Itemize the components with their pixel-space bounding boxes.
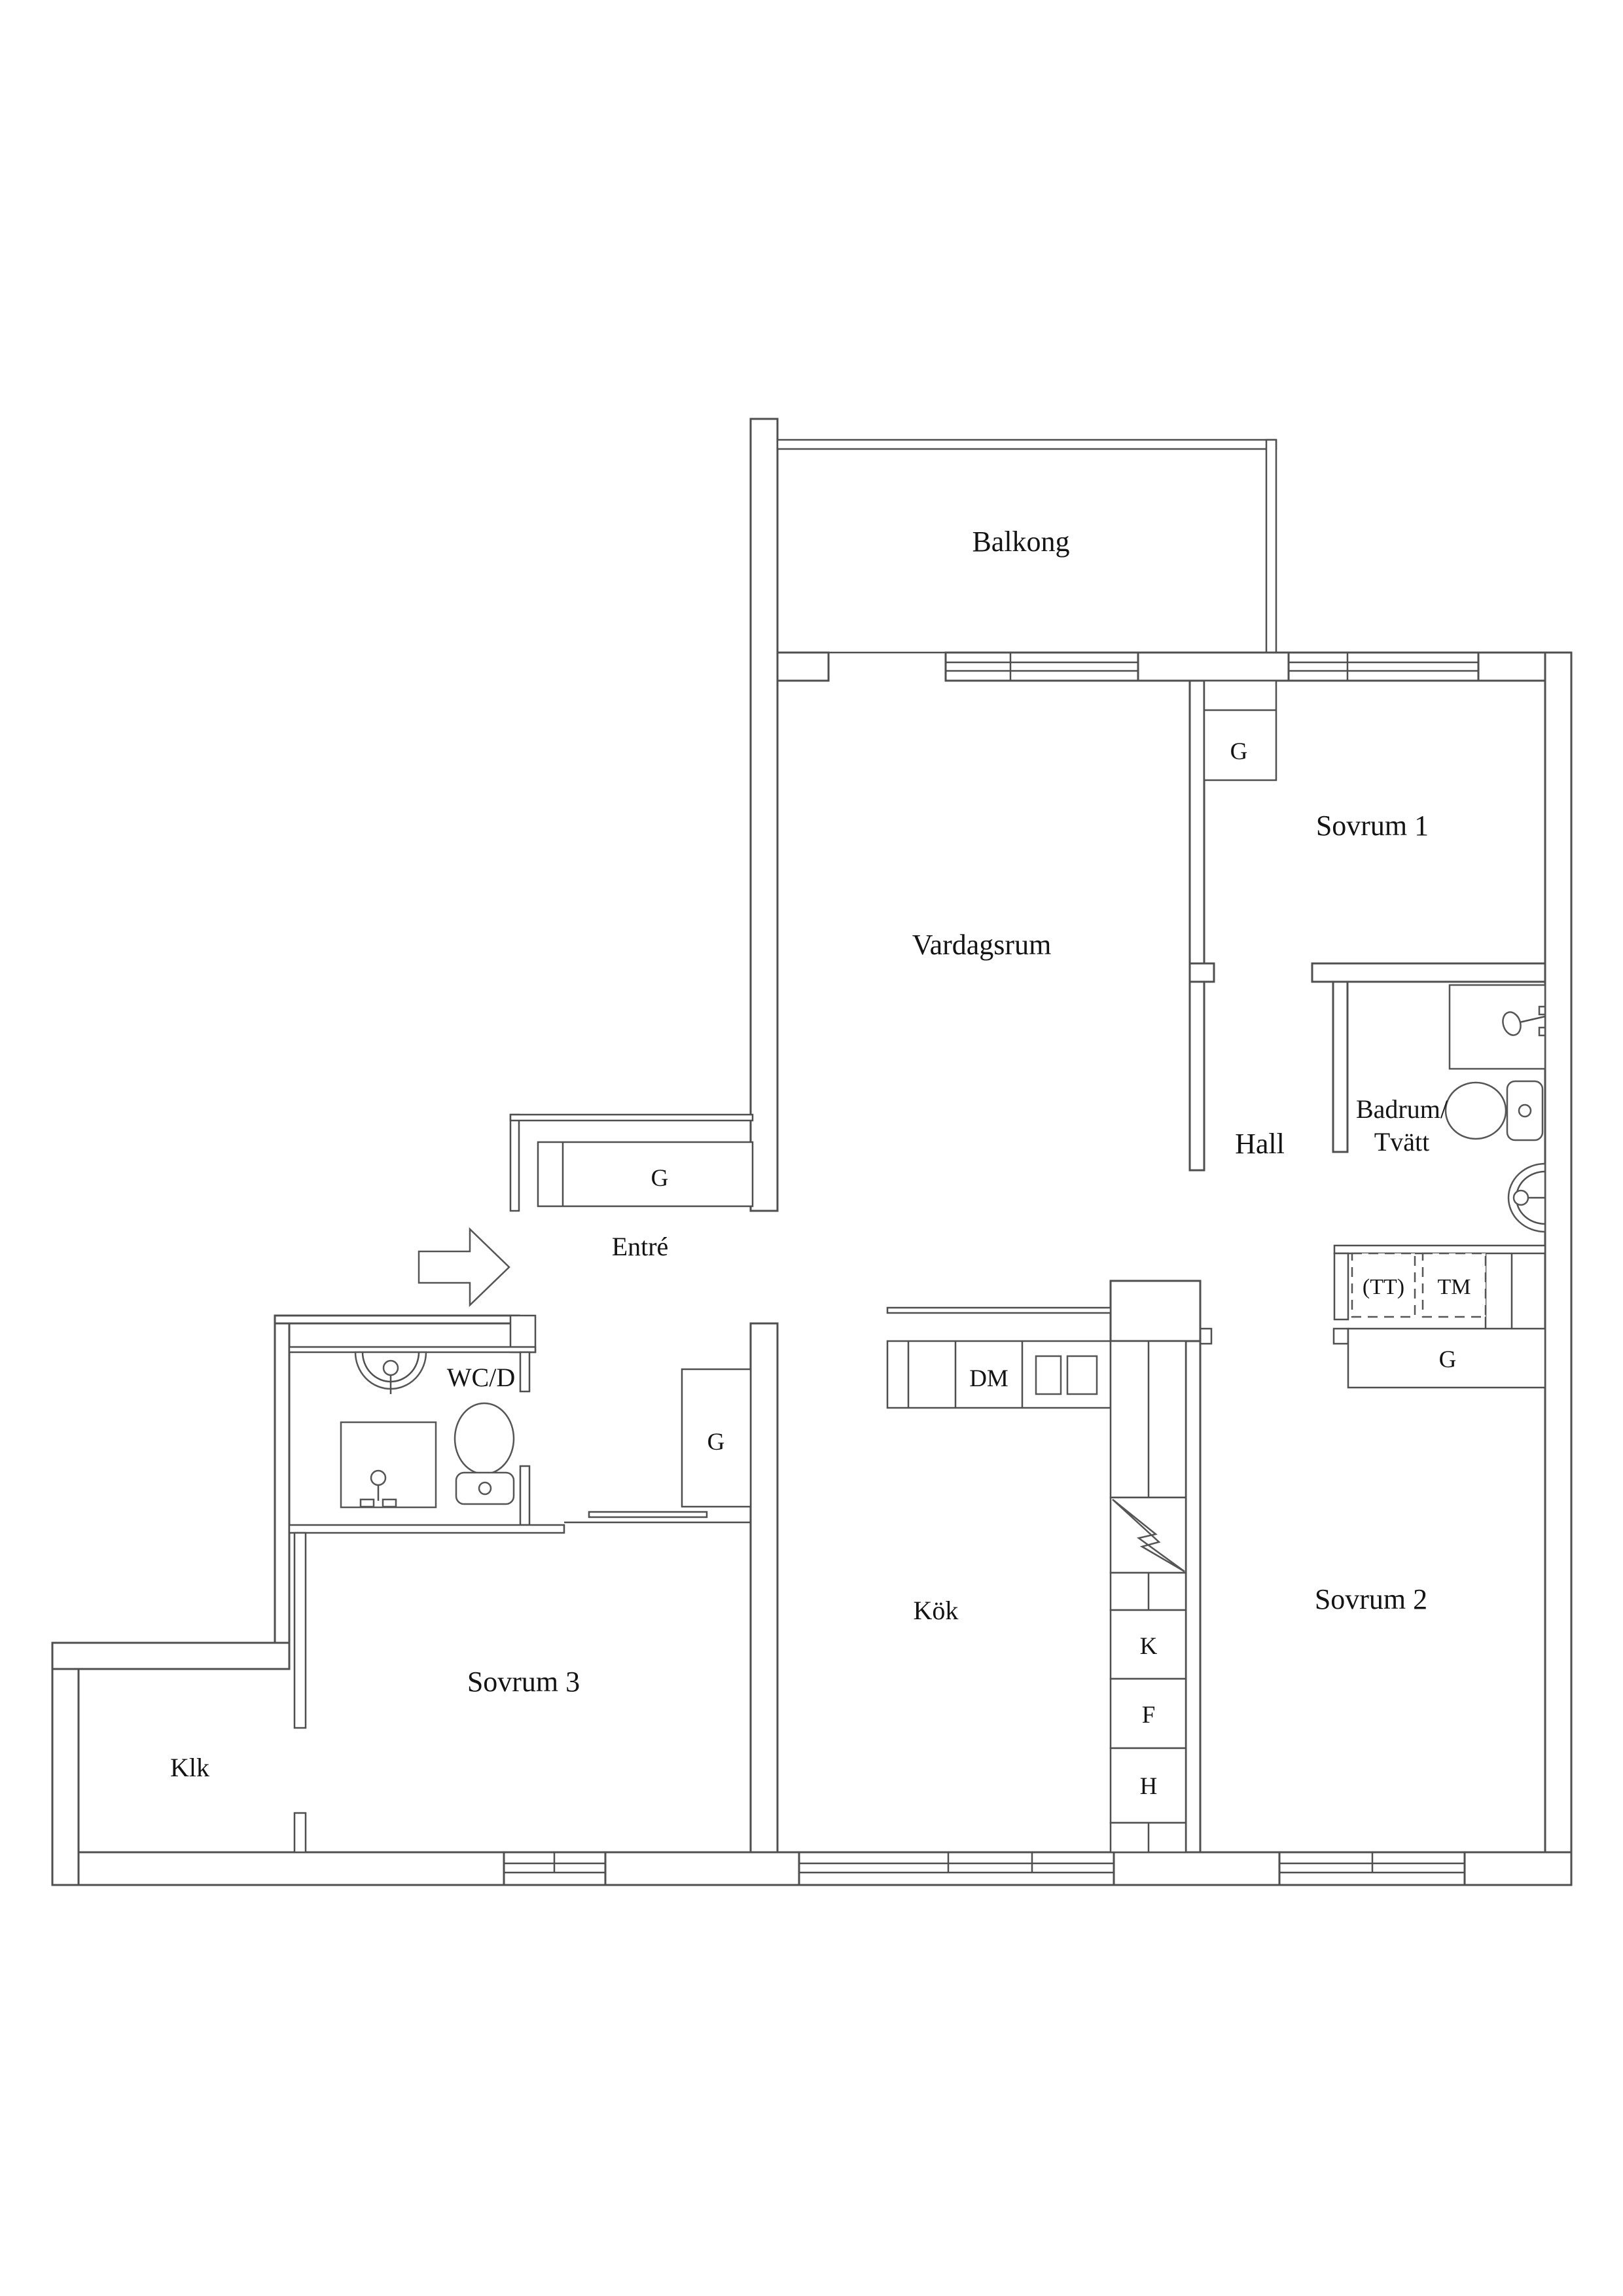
entry-south-wall	[275, 1316, 519, 1323]
bathroom-south-wall	[1334, 1246, 1545, 1253]
bathroom-label-line2: Tvätt	[1374, 1127, 1429, 1157]
freezer-label: F	[1142, 1702, 1156, 1729]
entrance-arrow-icon	[419, 1229, 509, 1305]
north-wall	[777, 653, 1545, 681]
bedroom3-wardrobe: G	[682, 1369, 751, 1507]
kitchen-west-wall	[751, 1323, 777, 1852]
bathroom-fixtures	[1446, 985, 1545, 1232]
entry-label: Entré	[612, 1232, 669, 1261]
bedroom1-south-wall	[1312, 963, 1545, 982]
wardrobe-label: G	[651, 1165, 669, 1192]
closet-north-outer-wall	[52, 1643, 289, 1669]
bedroom2-window	[1279, 1852, 1465, 1885]
closet-west-wall	[52, 1643, 79, 1885]
wc-shower	[341, 1422, 436, 1507]
entry-west-wall	[510, 1115, 519, 1211]
livingroom-label: Vardagsrum	[912, 929, 1052, 961]
balcony-top-wall	[777, 440, 1276, 449]
east-wall	[1545, 653, 1571, 1885]
balcony-right-wall	[1266, 440, 1276, 653]
bedroom2-label: Sovrum 2	[1315, 1583, 1427, 1615]
washer-label: TM	[1438, 1275, 1471, 1299]
kitchen-sink-basin	[1067, 1356, 1097, 1394]
entry-wardrobe: G	[538, 1142, 753, 1206]
bedroom1-wardrobe: G	[1204, 681, 1276, 780]
bedroom1-window	[1289, 653, 1478, 681]
sliding-door	[564, 1512, 751, 1522]
freezer-cell: F	[1111, 1679, 1186, 1748]
dishwasher-label: DM	[969, 1365, 1008, 1392]
wc-toilet	[455, 1403, 514, 1504]
hall-label: Hall	[1235, 1128, 1285, 1160]
kitchen-north-wall	[887, 1308, 1111, 1313]
dryer-label: (TT)	[1363, 1275, 1404, 1299]
wc-sink	[355, 1352, 426, 1394]
wc-label: WC/D	[447, 1363, 515, 1392]
bedroom2-wardrobe: G	[1348, 1329, 1545, 1388]
laundry-nook-stub	[1334, 1253, 1348, 1319]
wardrobe-label: G	[1230, 738, 1248, 765]
fridge-label: K	[1140, 1633, 1158, 1660]
bedroom2-west-wall	[1186, 1341, 1200, 1852]
tall-cabinet-label: H	[1140, 1773, 1158, 1800]
entry-north-wall	[510, 1115, 753, 1121]
bathroom-sink	[1508, 1164, 1545, 1232]
livingroom-hall-wall	[1190, 681, 1204, 1170]
faucet-icon	[1514, 1191, 1528, 1205]
shower	[1450, 985, 1545, 1069]
bedroom1-label: Sovrum 1	[1316, 810, 1429, 842]
bedroom3-window	[504, 1852, 605, 1885]
wc-south-wall	[289, 1525, 564, 1533]
tall-cabinet-cell: H	[1111, 1748, 1186, 1823]
laundry-appliances: (TT) TM	[1352, 1253, 1486, 1317]
fridge-cell: K	[1111, 1610, 1186, 1679]
wardrobe-label: G	[1439, 1346, 1457, 1373]
mixer-icon	[371, 1471, 385, 1485]
livingroom-window	[946, 653, 1138, 681]
kitchen-hall-block	[1111, 1281, 1200, 1341]
bathroom-west-wall	[1333, 982, 1347, 1152]
kitchen-window	[799, 1852, 1114, 1885]
balcony-left-wall	[751, 419, 777, 1211]
faucet-icon	[383, 1361, 398, 1375]
electrical-cell	[1111, 1498, 1186, 1573]
west-wall	[275, 1323, 289, 1643]
kitchen-sink-basin	[1036, 1356, 1061, 1394]
floor-plan: G G G G (TT) TM DM	[0, 0, 1623, 2296]
bedroom3-label: Sovrum 3	[467, 1666, 580, 1698]
klk-divider-wall	[294, 1533, 306, 1728]
balcony-label: Balkong	[972, 526, 1069, 558]
kitchen-label: Kök	[914, 1596, 959, 1625]
bathroom-label-line1: Badrum/	[1356, 1094, 1448, 1124]
klk-label: Klk	[170, 1753, 209, 1782]
toilet	[1446, 1081, 1543, 1140]
wardrobe-label: G	[707, 1429, 725, 1456]
